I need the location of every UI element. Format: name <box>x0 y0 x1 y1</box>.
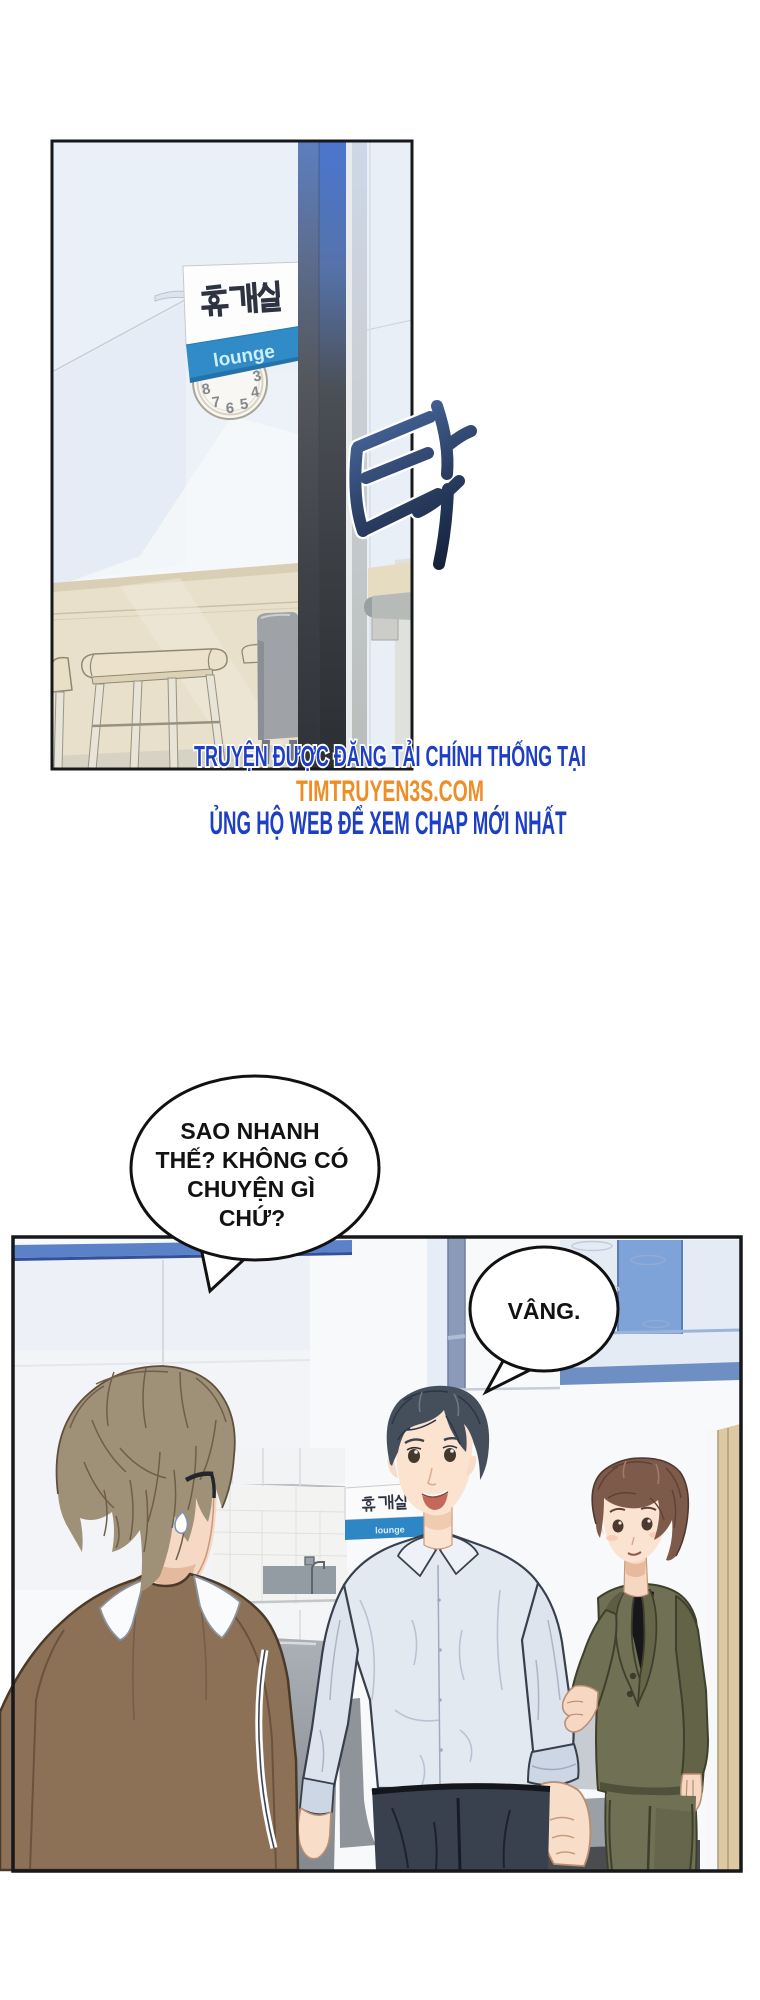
svg-text:6: 6 <box>225 400 235 418</box>
svg-text:THẾ? KHÔNG CÓ: THẾ? KHÔNG CÓ <box>156 1146 349 1173</box>
svg-text:TRUYỆN ĐƯỢC ĐĂNG TẢI CHÍNH THỐ: TRUYỆN ĐƯỢC ĐĂNG TẢI CHÍNH THỐNG TẠI <box>194 739 586 773</box>
svg-text:SAO NHANH: SAO NHANH <box>180 1118 319 1144</box>
svg-text:CHUYỆN GÌ: CHUYỆN GÌ <box>187 1175 315 1202</box>
svg-text:VÂNG.: VÂNG. <box>508 1297 581 1324</box>
svg-text:CHỨ?: CHỨ? <box>219 1204 285 1231</box>
svg-text:ỦNG HỘ WEB ĐỂ XEM CHAP MỚI NHẤ: ỦNG HỘ WEB ĐỂ XEM CHAP MỚI NHẤT <box>210 805 567 841</box>
svg-text:lounge: lounge <box>375 1524 405 1535</box>
svg-text:TIMTRUYEN3S.COM: TIMTRUYEN3S.COM <box>296 775 484 808</box>
